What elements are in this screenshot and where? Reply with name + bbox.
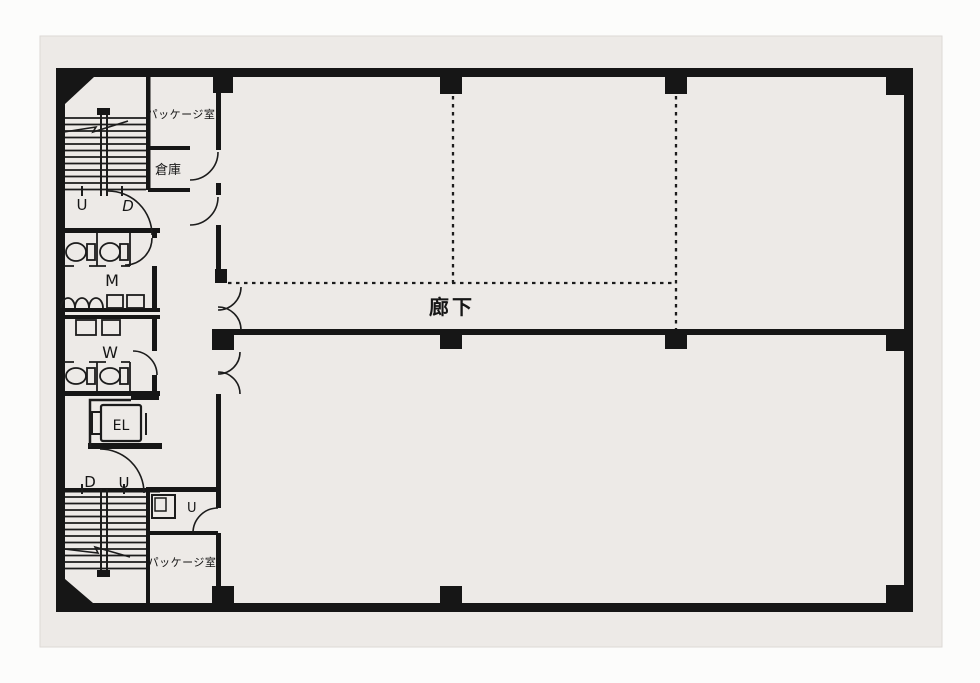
label-package-room-bottom: パッケージ室 [148, 555, 217, 569]
label-stairs-bottom-down: D [84, 473, 96, 491]
label-stairs-top-up: U [77, 196, 88, 214]
label-mens-restroom: M [105, 271, 119, 290]
corridor-south-wall [218, 329, 913, 335]
floorplan-drawing: パッケージ室 倉庫 U D M W EL D U U パッケージ室 廊下 [0, 0, 980, 683]
handrail-post [97, 108, 110, 115]
label-storage: 倉庫 [155, 163, 181, 178]
label-stairs-top-down: D [122, 197, 134, 215]
corner-column-top-right [886, 77, 904, 95]
floorplan-scan: パッケージ室 倉庫 U D M W EL D U U パッケージ室 廊下 [0, 0, 980, 683]
label-duct: U [187, 501, 197, 516]
label-womens-restroom: W [102, 343, 118, 362]
label-corridor: 廊下 [429, 295, 475, 319]
label-stairs-bottom-up: U [119, 474, 130, 492]
handrail-post [97, 570, 110, 577]
label-package-room-top: パッケージ室 [147, 107, 216, 121]
label-elevator: EL [113, 418, 130, 434]
corner-column-bottom-right [886, 585, 904, 603]
